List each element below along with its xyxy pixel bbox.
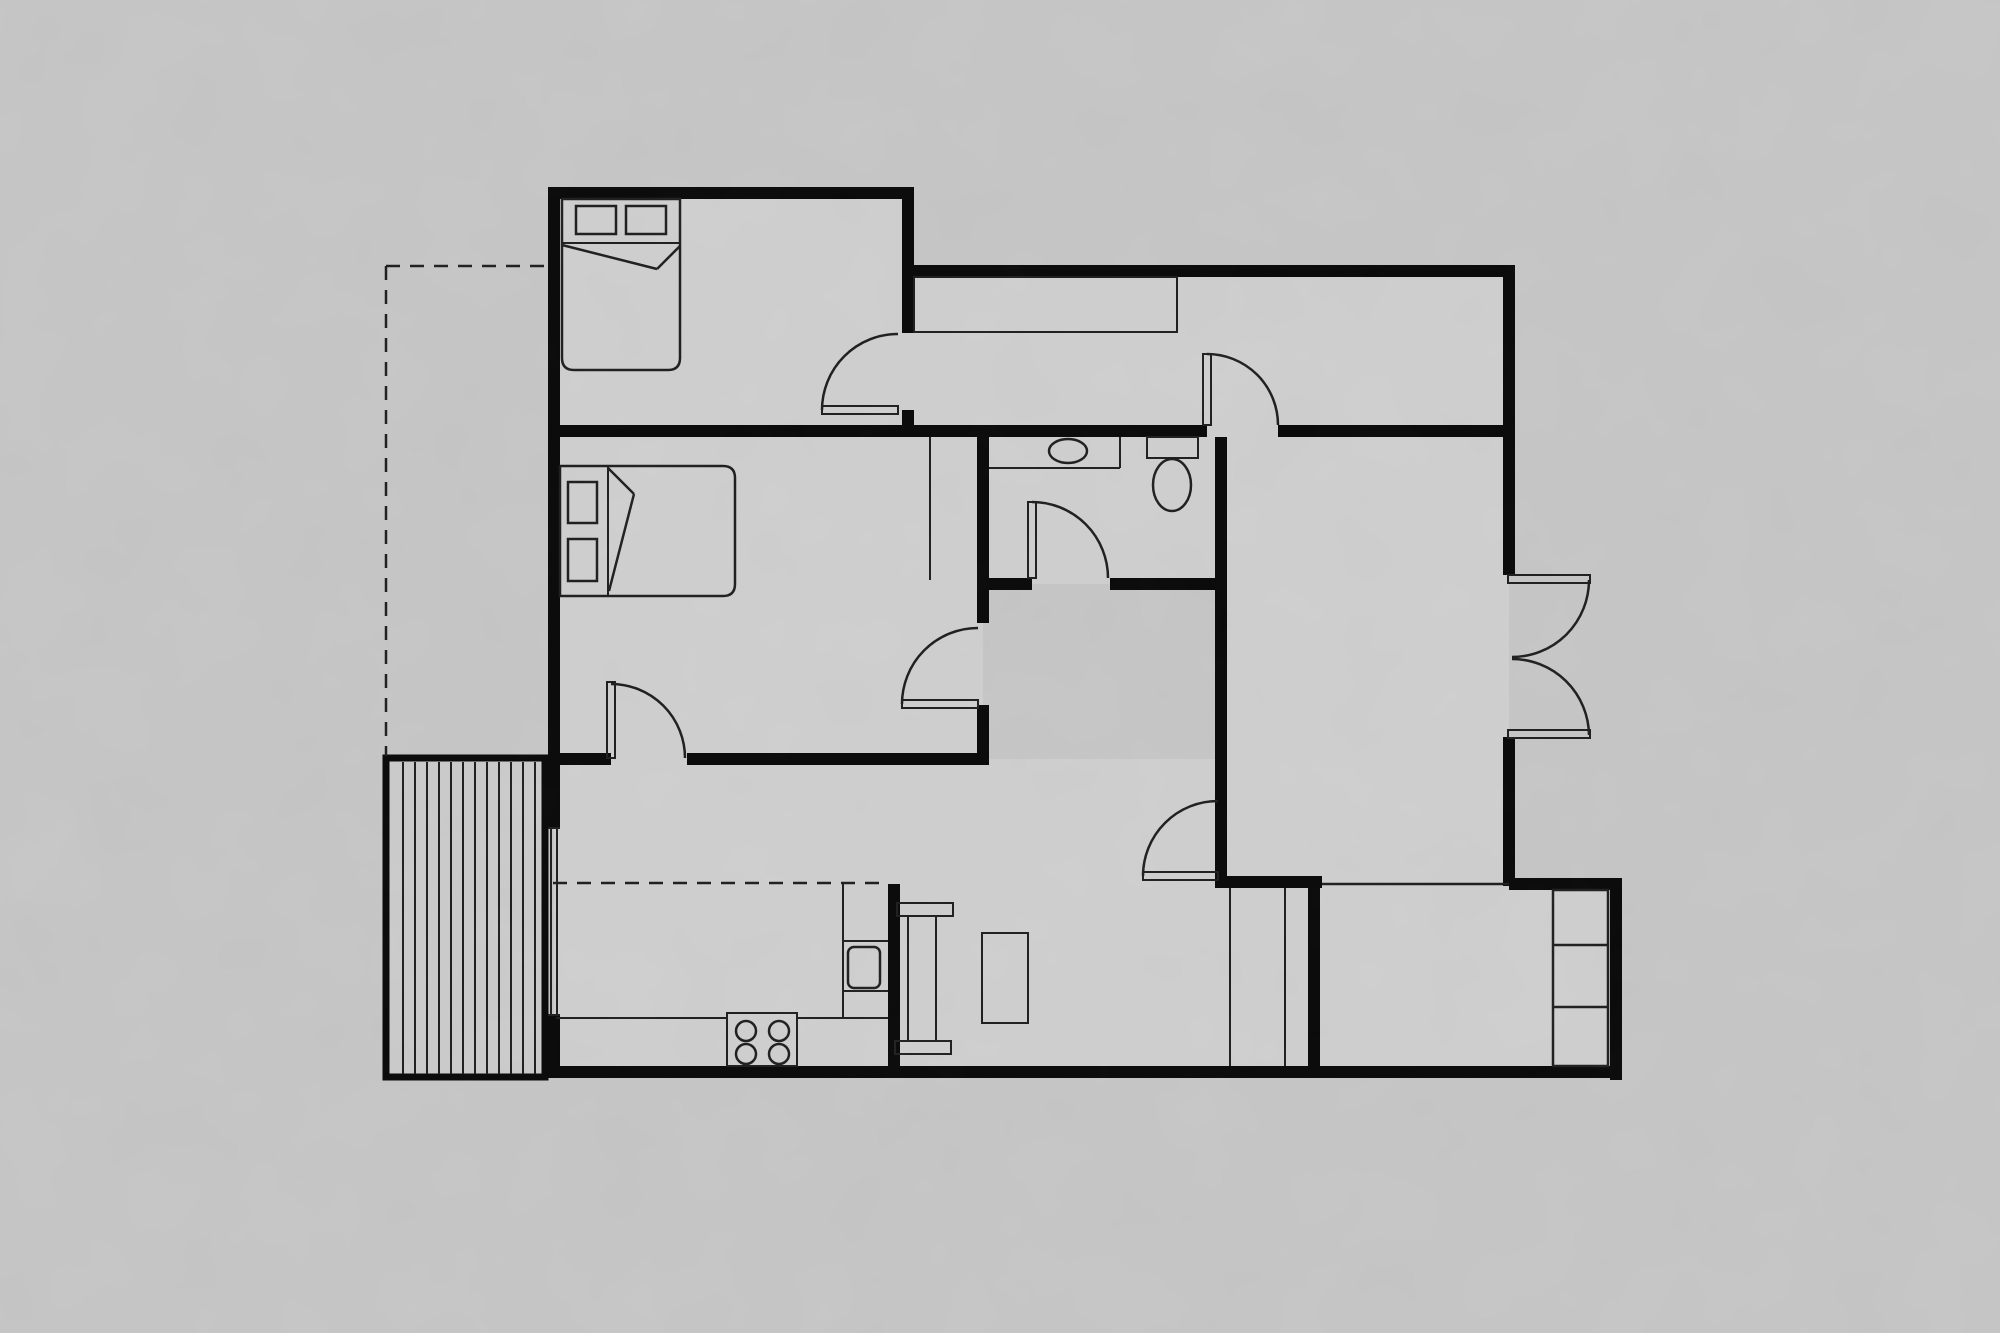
floor-plan-svg bbox=[0, 0, 2000, 1333]
texture-overlay-grain bbox=[0, 0, 2000, 1333]
floor-plan-page bbox=[0, 0, 2000, 1333]
